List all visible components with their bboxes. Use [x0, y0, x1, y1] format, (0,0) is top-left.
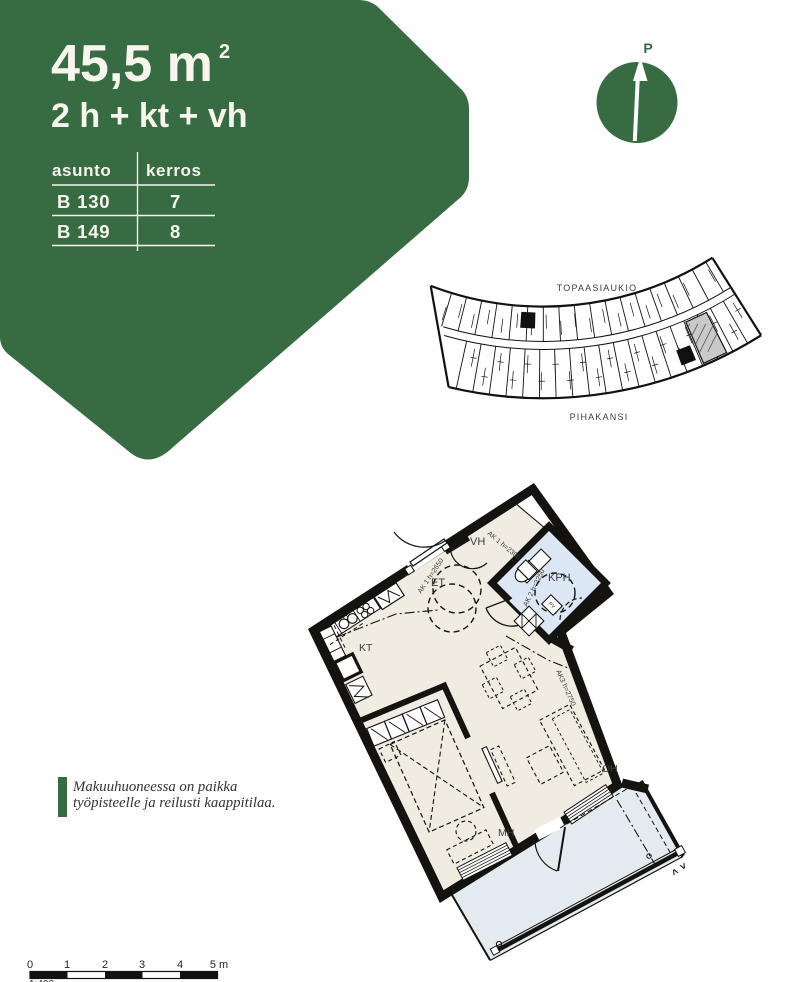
svg-text:MH: MH — [498, 827, 514, 839]
svg-text:kerros: kerros — [146, 161, 202, 180]
svg-text:7: 7 — [170, 191, 180, 212]
svg-text:2: 2 — [102, 959, 108, 971]
svg-text:45,5 m: 45,5 m — [51, 35, 213, 93]
svg-text:5 m: 5 m — [210, 959, 228, 971]
svg-text:PIHAKANSI: PIHAKANSI — [570, 412, 629, 422]
svg-text:2 h + kt + vh: 2 h + kt + vh — [51, 97, 248, 135]
svg-text:TOPAASIAUKIO: TOPAASIAUKIO — [557, 283, 638, 293]
svg-text:OH: OH — [602, 763, 618, 775]
svg-text:1: 1 — [64, 959, 70, 971]
svg-text:8: 8 — [170, 221, 180, 242]
svg-text:0: 0 — [27, 959, 33, 971]
svg-text:B 149: B 149 — [57, 221, 110, 242]
svg-text:KT: KT — [359, 642, 373, 654]
svg-text:asunto: asunto — [52, 161, 111, 180]
svg-text:P: P — [643, 40, 652, 56]
svg-text:3: 3 — [139, 959, 145, 971]
svg-text:KPH: KPH — [548, 572, 571, 584]
svg-text:B 130: B 130 — [57, 191, 110, 212]
svg-text:4: 4 — [177, 959, 183, 971]
svg-text:2: 2 — [219, 41, 230, 63]
svg-text:VH: VH — [470, 536, 485, 548]
